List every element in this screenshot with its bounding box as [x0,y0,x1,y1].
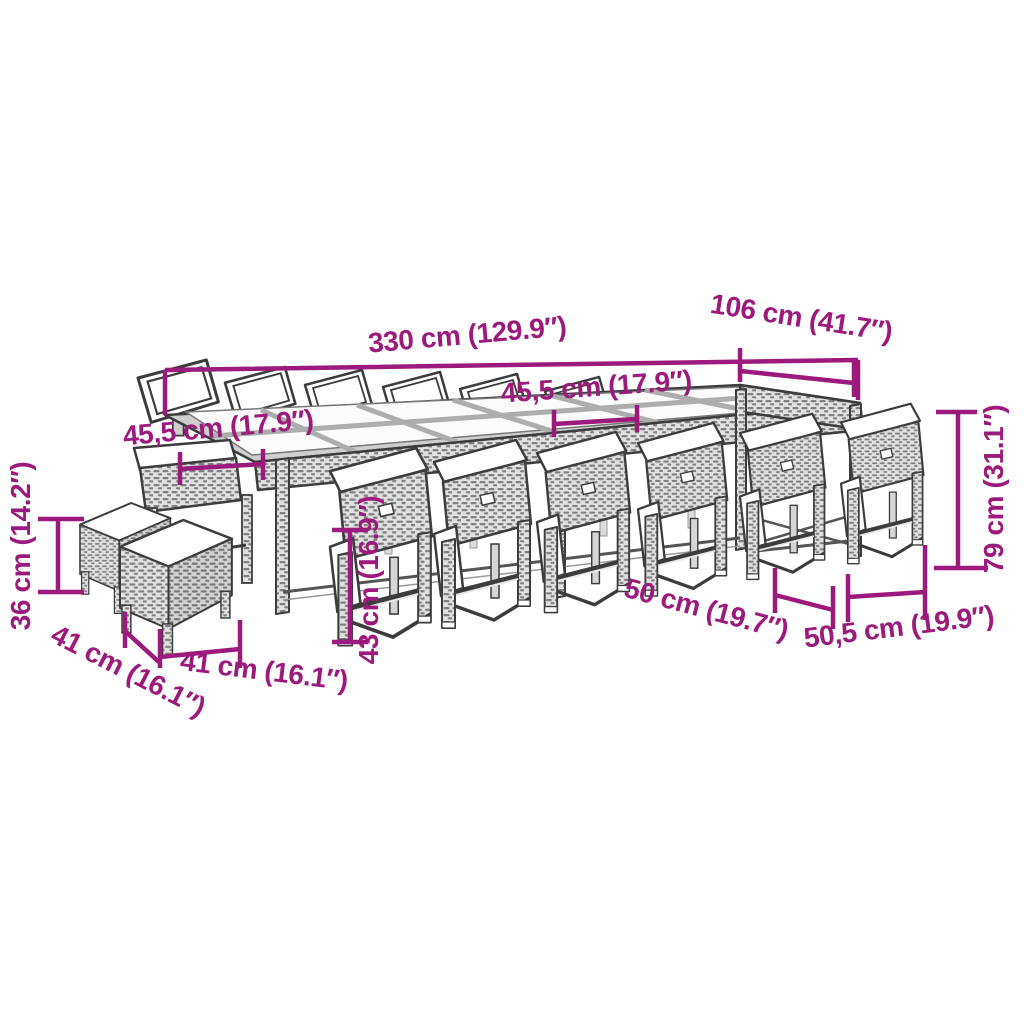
dimension-stool-height: 36 cm (14.2″) [5,462,84,631]
table-width-label: 106 cm (41.7″) [708,288,894,347]
dimension-chair-depth: 50 cm (19.7″) [621,568,833,646]
product-dimension-diagram: 330 cm (129.9″) 106 cm (41.7″) 45,5 cm (… [0,0,1024,1024]
stool-height-label: 36 cm (14.2″) [5,462,36,631]
stool-width-label: 41 cm (16.1″) [179,645,350,696]
front-chair-6 [841,404,923,564]
dimension-chair-height: 79 cm (31.1″) [934,405,1009,574]
dimension-table-width: 106 cm (41.7″) [708,288,894,397]
chair-height-label: 79 cm (31.1″) [978,405,1009,574]
front-chair-4 [638,423,727,596]
front-chair-5 [740,414,825,579]
front-chair-3 [537,432,630,612]
furniture-dimension-illustration: 330 cm (129.9″) 106 cm (41.7″) 45,5 cm (… [0,0,1024,1024]
front-chair-2 [434,440,531,628]
chair-depth-label: 50 cm (19.7″) [621,572,792,646]
stool-2 [120,520,232,657]
chair-seat-height-label: 43 cm (16.9″) [353,496,384,665]
table-length-label: 330 cm (129.9″) [367,310,568,358]
